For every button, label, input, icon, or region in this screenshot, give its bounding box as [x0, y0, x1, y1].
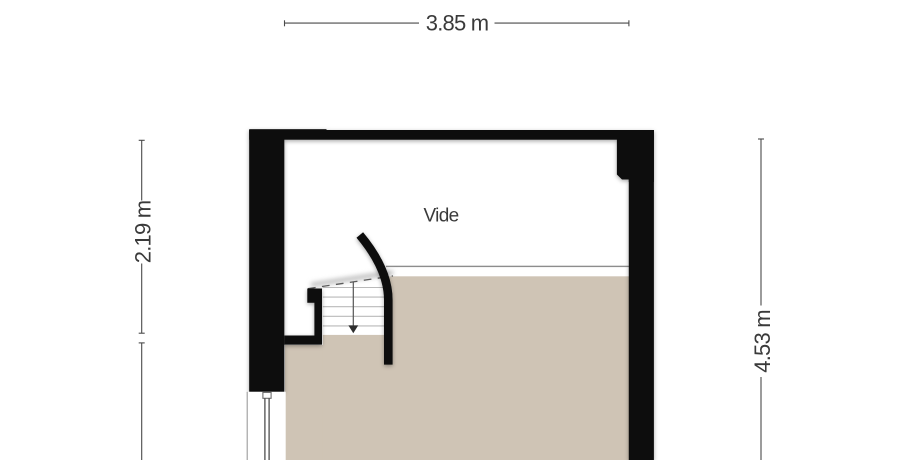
svg-text:3.85 m: 3.85 m: [426, 11, 488, 36]
svg-text:4.53 m: 4.53 m: [750, 310, 775, 372]
svg-text:2.19 m: 2.19 m: [130, 201, 155, 263]
svg-text:Vide: Vide: [424, 205, 459, 226]
